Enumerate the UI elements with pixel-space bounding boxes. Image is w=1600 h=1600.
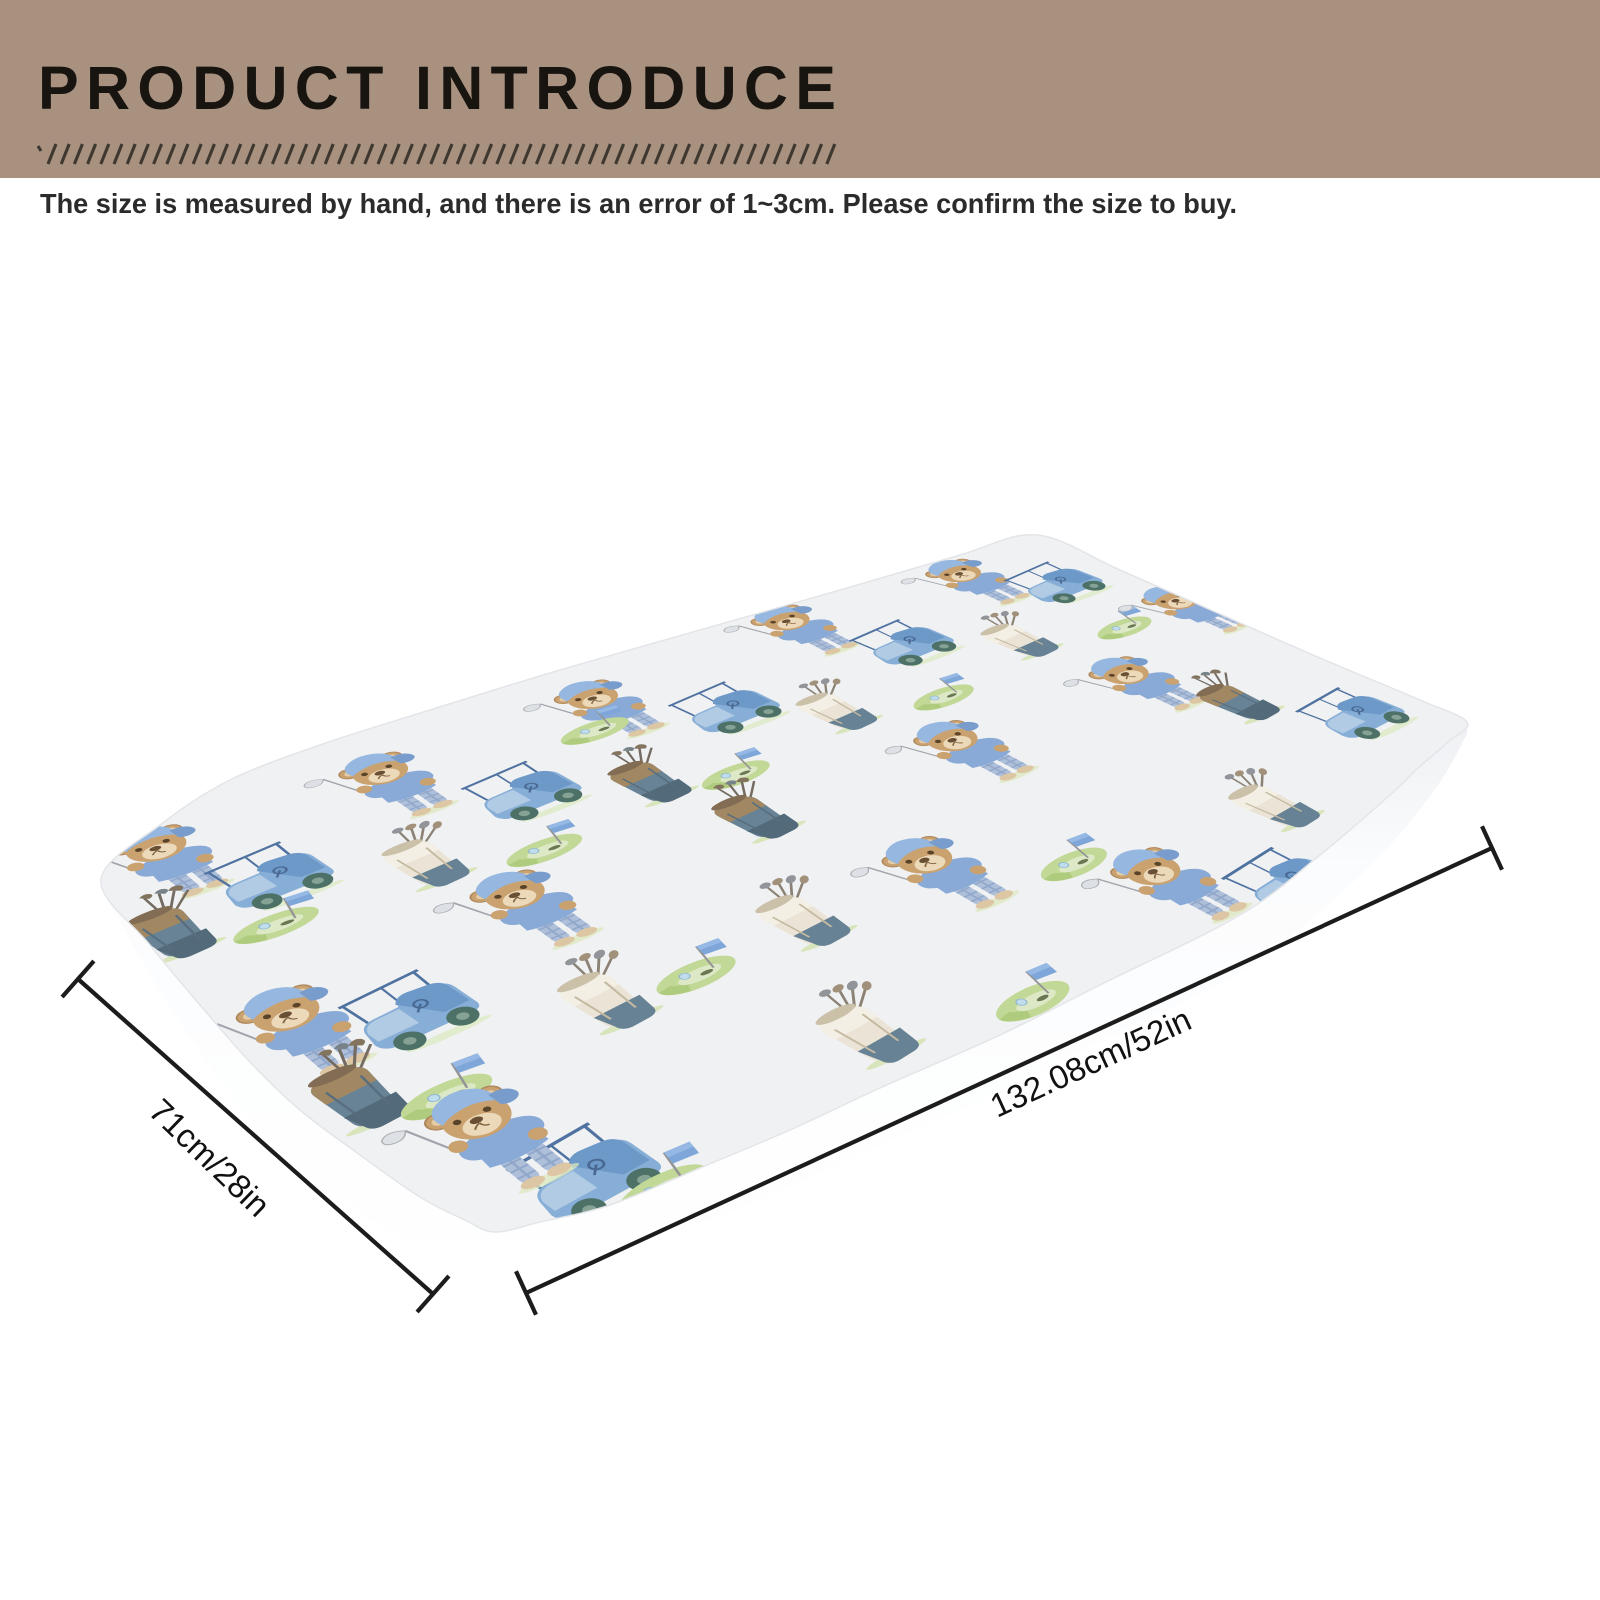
svg-text:The size is measured by hand,: The size is measured by hand, and there …: [40, 188, 1237, 219]
svg-text:PRODUCT INTRODUCE: PRODUCT INTRODUCE: [38, 54, 843, 122]
